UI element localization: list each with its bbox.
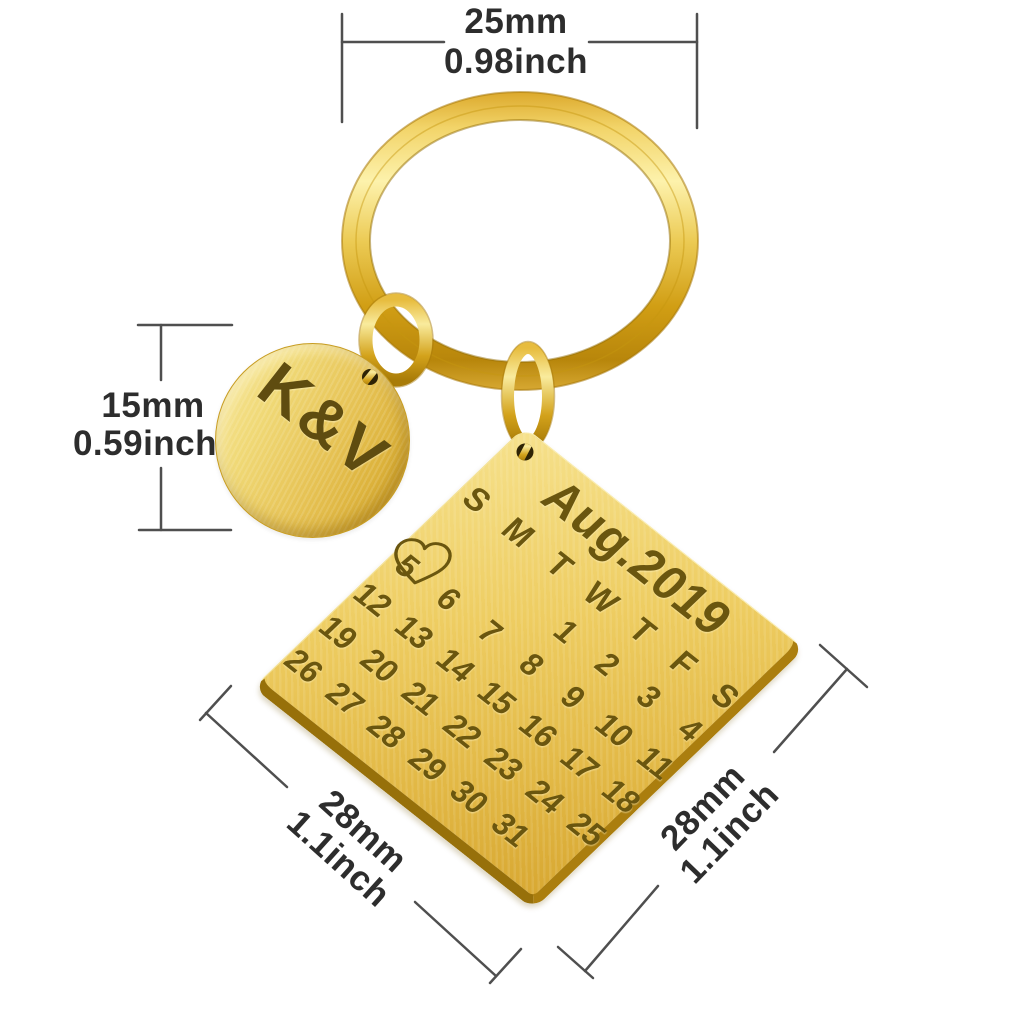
dim-bl-end-tick (490, 949, 521, 983)
ring-width-inch-label: 0.98inch (416, 42, 616, 82)
ring-width-mm-label: 25mm (416, 2, 616, 42)
charm-disc: K&V (215, 343, 410, 538)
dim-bl-line-a (206, 713, 287, 787)
product-photo: Aug.2019 S M T W T F S 1 2 3 4 5 6 7 (0, 0, 1010, 1010)
dim-bl-start-tick (200, 686, 231, 720)
dim-br-line-a (585, 886, 658, 971)
dim-br-end-tick (820, 645, 867, 687)
dim-bl-line-b (415, 902, 496, 976)
charm-diameter-inch-label: 0.59inch (55, 424, 235, 464)
charm-diameter-mm-label: 15mm (63, 386, 243, 426)
dim-br-line-b (774, 669, 847, 752)
dim-br-start-tick (558, 947, 593, 978)
